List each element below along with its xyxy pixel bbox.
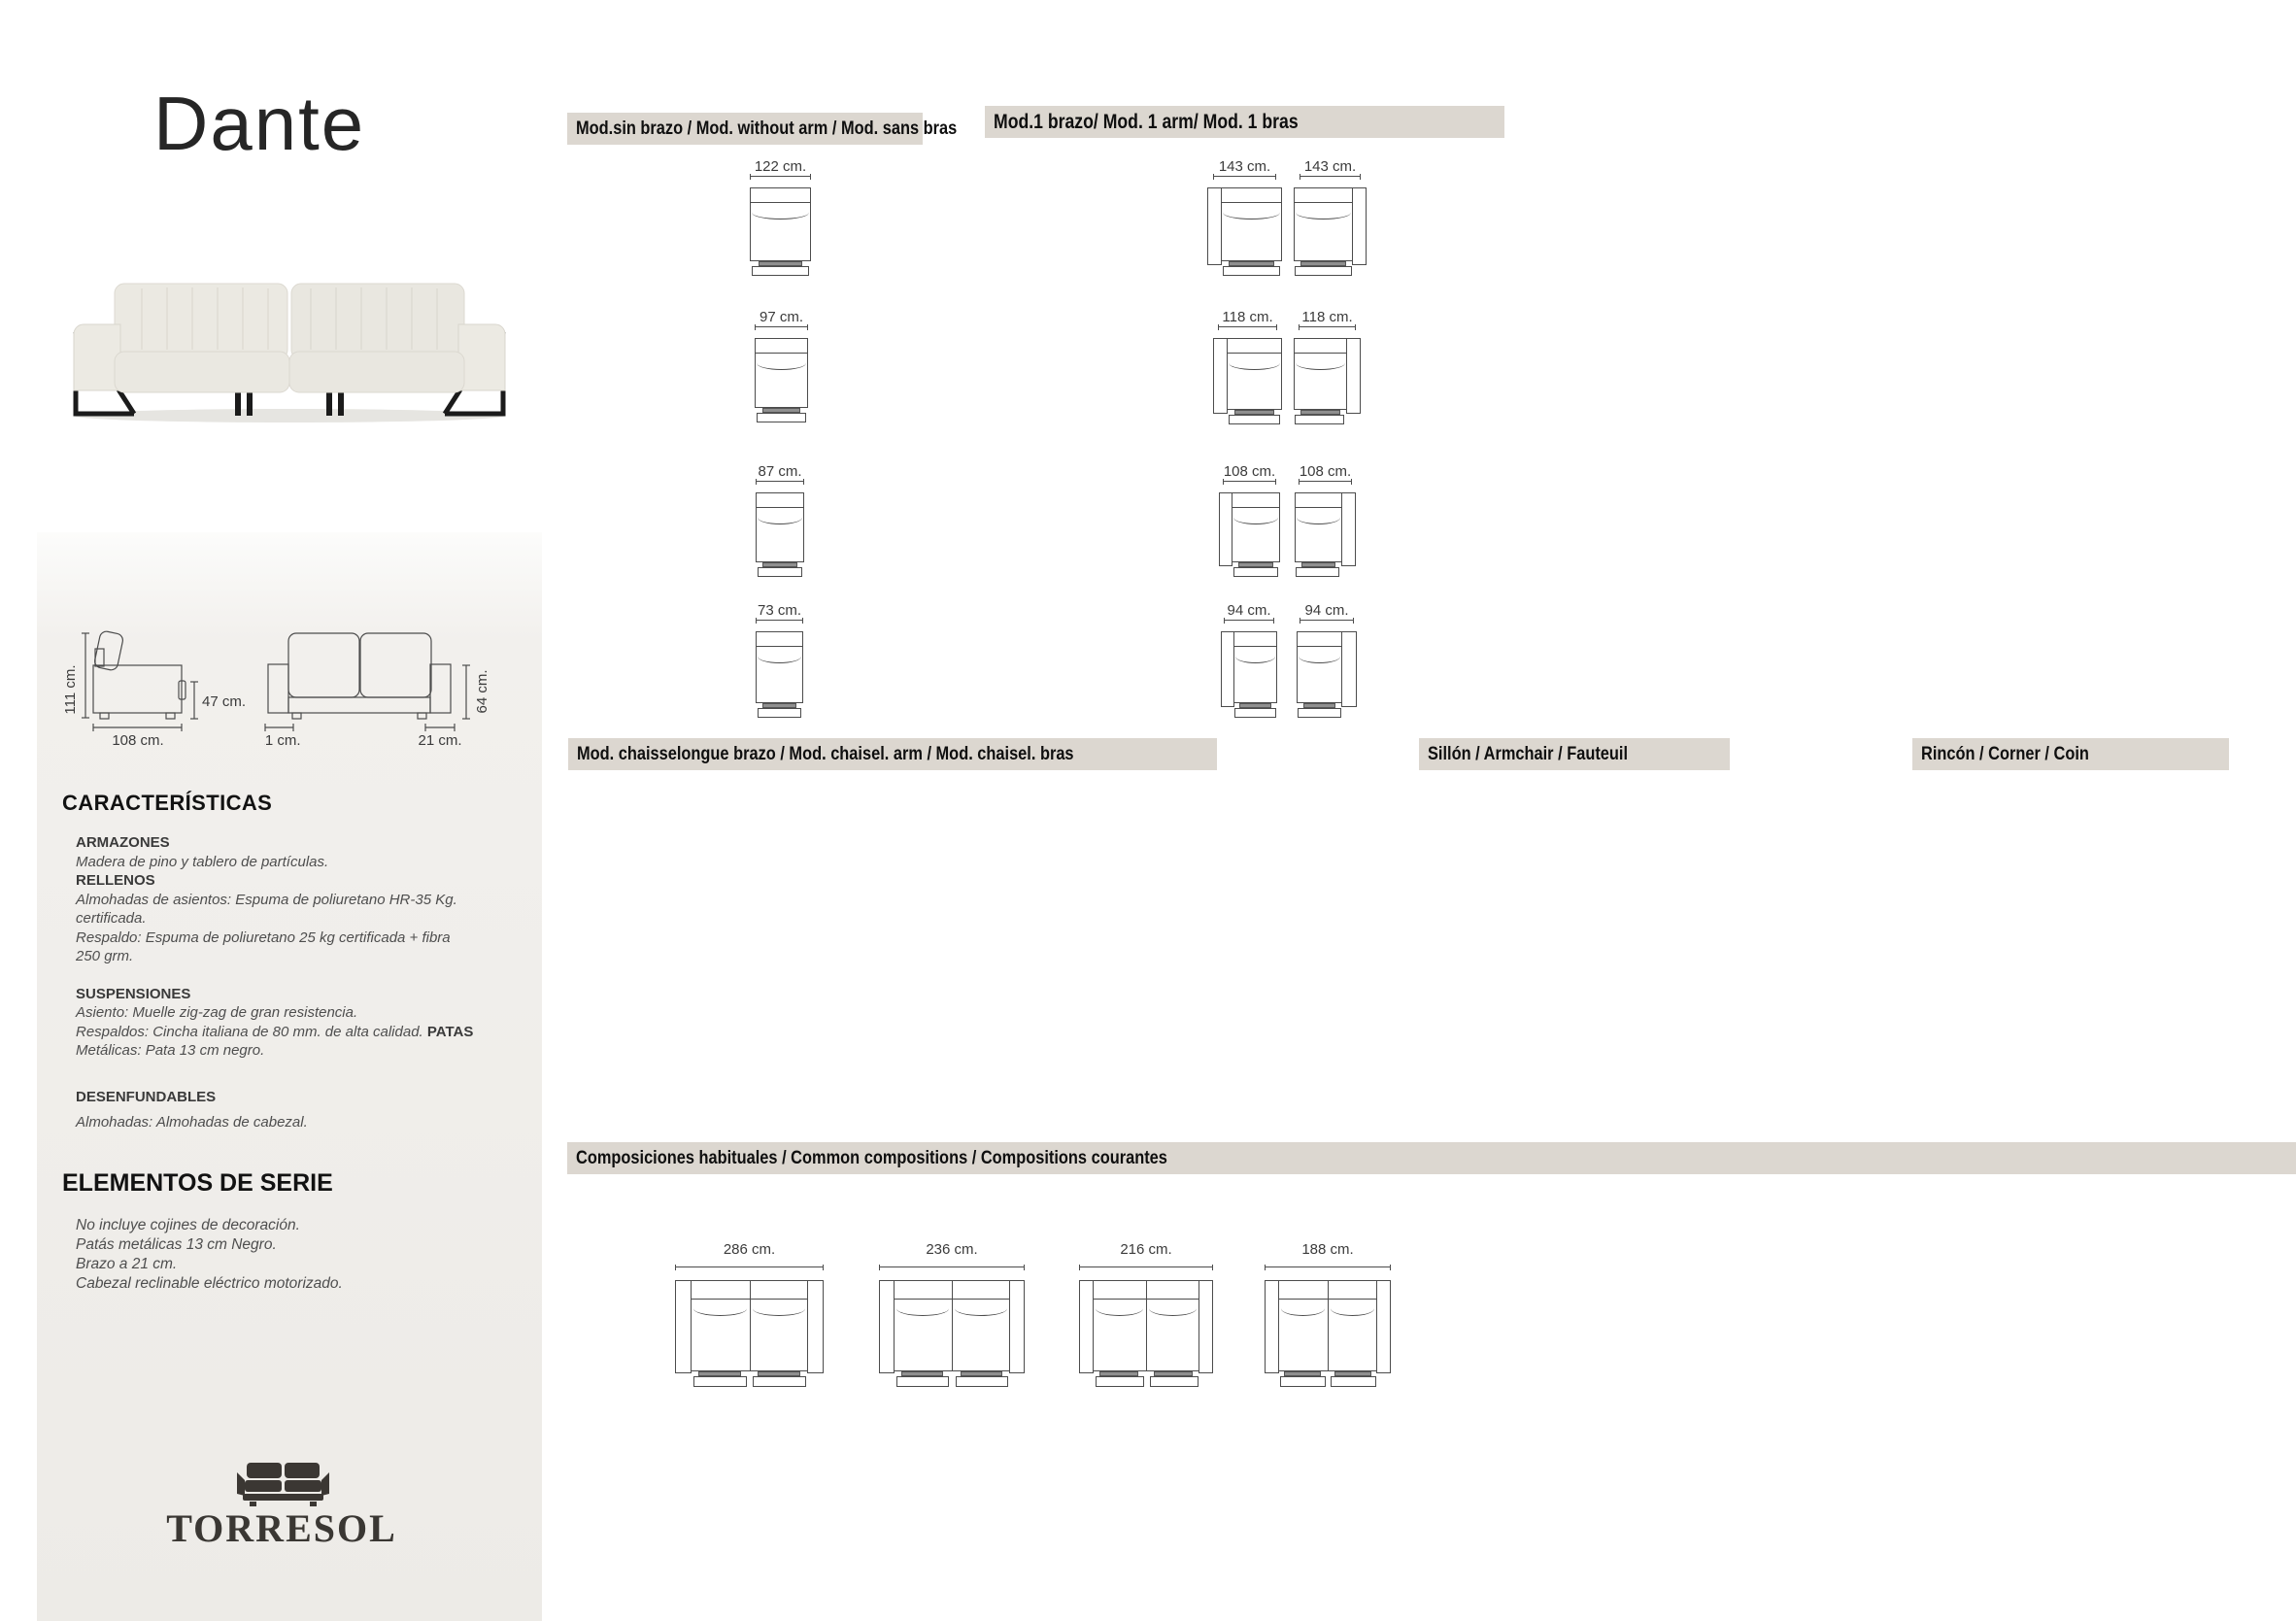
dimension-line bbox=[879, 1266, 1025, 1267]
module-body bbox=[755, 338, 808, 408]
side-height-label: 111 cm. bbox=[62, 664, 79, 714]
characteristics-text: ARMAZONES Madera de pino y tablero de pa… bbox=[76, 833, 532, 1132]
section-header-armchair: Sillón / Armchair / Fauteuil bbox=[1419, 738, 1730, 770]
module-width-label: 73 cm. bbox=[756, 602, 803, 621]
dimension-line bbox=[1079, 1266, 1213, 1267]
dimension-line bbox=[756, 481, 804, 482]
composition-base bbox=[956, 1376, 1008, 1387]
module-body bbox=[1233, 631, 1277, 703]
composition-arm-right bbox=[1376, 1280, 1391, 1373]
composition-base bbox=[1096, 1376, 1144, 1387]
composition-width-label: 286 cm. bbox=[675, 1241, 824, 1267]
side-depth-label: 108 cm. bbox=[112, 732, 163, 749]
module-width-label: 94 cm. bbox=[1224, 602, 1274, 621]
sofa-seat-left bbox=[115, 352, 289, 392]
dimension-line bbox=[675, 1266, 824, 1267]
sofa-back-left bbox=[115, 284, 287, 359]
composition-body bbox=[1278, 1280, 1377, 1371]
dimension-line bbox=[1265, 1266, 1391, 1267]
dimension-line bbox=[1213, 176, 1276, 177]
module-arm bbox=[1221, 631, 1234, 707]
page-title: Dante bbox=[153, 85, 365, 161]
composition-body bbox=[691, 1280, 808, 1371]
module-body bbox=[1294, 187, 1353, 261]
module-body bbox=[1297, 631, 1342, 703]
module-arm bbox=[1346, 338, 1361, 414]
torresol-wordmark: TORRESOL bbox=[136, 1505, 427, 1551]
block-text-line: certificada. bbox=[76, 909, 532, 929]
block-label-desenfundables: DESENFUNDABLES bbox=[76, 1088, 532, 1107]
section-header-chaise: Mod. chaisselongue brazo / Mod. chaisel.… bbox=[568, 738, 1217, 770]
block-text-line: Metálicas: Pata 13 cm negro. bbox=[76, 1041, 532, 1061]
module-body bbox=[750, 187, 811, 261]
torresol-logo-sofa-icon bbox=[237, 1461, 330, 1509]
block-label-armazones: ARMAZONES bbox=[76, 833, 532, 853]
module-width-label: 143 cm. bbox=[1300, 158, 1361, 177]
series-line: Cabezal reclinable eléctrico motorizado. bbox=[76, 1274, 523, 1294]
module-width-label: 118 cm. bbox=[1299, 309, 1356, 327]
section-header-corner: Rincón / Corner / Coin bbox=[1912, 738, 2229, 770]
block-label-rellenos: RELLENOS bbox=[76, 871, 532, 891]
module-arm bbox=[1341, 492, 1356, 566]
module-width-label: 94 cm. bbox=[1300, 602, 1354, 621]
sofa-arm-left bbox=[74, 324, 120, 390]
block-text-line: Respaldos: Cincha italiana de 80 mm. de … bbox=[76, 1023, 532, 1042]
dimension-line bbox=[1299, 481, 1352, 482]
series-text: No incluye cojines de decoración. Patás … bbox=[76, 1216, 523, 1294]
module-body bbox=[1294, 338, 1347, 410]
dimensions-diagram-front-view: 21 cm. 21 cm. 64 cm. bbox=[264, 622, 492, 750]
module-body bbox=[1221, 187, 1282, 261]
composition-base bbox=[1280, 1376, 1326, 1387]
dimension-line bbox=[756, 620, 803, 621]
section-header-no-arm: Mod.sin brazo / Mod. without arm / Mod. … bbox=[567, 113, 923, 145]
module-arm bbox=[1352, 187, 1367, 265]
inline-bold-patas: PATAS bbox=[427, 1024, 474, 1040]
module-base bbox=[1298, 708, 1341, 718]
module-base bbox=[1295, 266, 1352, 276]
module-width-label: 118 cm. bbox=[1218, 309, 1277, 327]
product-photo-sofa bbox=[60, 280, 519, 423]
module-width-label: 87 cm. bbox=[756, 463, 804, 482]
module-base bbox=[758, 567, 802, 577]
module-base bbox=[757, 413, 806, 422]
dimension-line bbox=[1224, 620, 1274, 621]
composition-base bbox=[753, 1376, 806, 1387]
series-heading: ELEMENTOS DE SERIE bbox=[62, 1169, 333, 1198]
composition-arm-right bbox=[1009, 1280, 1025, 1373]
composition-base bbox=[1331, 1376, 1376, 1387]
composition-width-label: 236 cm. bbox=[879, 1241, 1025, 1267]
module-arm bbox=[1207, 187, 1222, 265]
composition-base bbox=[693, 1376, 747, 1387]
module-width-label: 108 cm. bbox=[1299, 463, 1352, 482]
dimension-line bbox=[750, 176, 811, 177]
series-line: Patás metálicas 13 cm Negro. bbox=[76, 1235, 523, 1255]
block-text-line: Madera de pino y tablero de partículas. bbox=[76, 853, 532, 872]
composition-arm-left bbox=[675, 1280, 692, 1373]
module-base bbox=[1223, 266, 1280, 276]
module-width-label: 108 cm. bbox=[1223, 463, 1276, 482]
composition-body bbox=[1093, 1280, 1199, 1371]
module-arm bbox=[1213, 338, 1228, 414]
module-body bbox=[1295, 492, 1342, 562]
sofa-shadow bbox=[74, 409, 505, 422]
series-line: No incluye cojines de decoración. bbox=[76, 1216, 523, 1235]
composition-arm-left bbox=[879, 1280, 895, 1373]
composition-arm-left bbox=[1079, 1280, 1094, 1373]
dimension-line bbox=[1218, 326, 1277, 327]
arm-width-left-label: 21 cm. bbox=[264, 732, 301, 749]
section-header-one-arm: Mod.1 brazo/ Mod. 1 arm/ Mod. 1 bras bbox=[985, 106, 1504, 138]
composition-arm-left bbox=[1265, 1280, 1279, 1373]
module-width-label: 122 cm. bbox=[750, 158, 811, 177]
module-base bbox=[1296, 567, 1339, 577]
module-base bbox=[758, 708, 801, 718]
block-text-line: 250 grm. bbox=[76, 947, 532, 966]
module-base bbox=[1234, 708, 1276, 718]
module-body bbox=[756, 492, 804, 562]
module-width-label: 143 cm. bbox=[1213, 158, 1276, 177]
composition-base bbox=[896, 1376, 949, 1387]
composition-width-label: 188 cm. bbox=[1265, 1241, 1391, 1267]
composition-width-label: 216 cm. bbox=[1079, 1241, 1213, 1267]
composition-base bbox=[1150, 1376, 1199, 1387]
module-arm bbox=[1341, 631, 1357, 707]
module-arm bbox=[1219, 492, 1232, 566]
dimension-line bbox=[1223, 481, 1276, 482]
characteristics-heading: CARACTERÍSTICAS bbox=[62, 791, 272, 816]
module-base bbox=[1229, 415, 1280, 424]
seat-height-label: 47 cm. bbox=[202, 693, 246, 710]
block-text-line: Asiento: Muelle zig-zag de gran resisten… bbox=[76, 1003, 532, 1023]
section-header-compositions: Composiciones habituales / Common compos… bbox=[567, 1142, 2296, 1174]
composition-arm-right bbox=[1199, 1280, 1213, 1373]
module-body bbox=[1227, 338, 1282, 410]
dimension-line bbox=[1300, 176, 1361, 177]
series-line: Brazo a 21 cm. bbox=[76, 1255, 523, 1274]
module-base bbox=[1233, 567, 1278, 577]
dimension-line bbox=[755, 326, 808, 327]
block-label-suspensiones: SUSPENSIONES bbox=[76, 985, 532, 1004]
module-base bbox=[1295, 415, 1344, 424]
block-text-line: Respaldo: Espuma de poliuretano 25 kg ce… bbox=[76, 929, 532, 948]
module-body bbox=[756, 631, 803, 703]
module-base bbox=[752, 266, 809, 276]
block-text-line: Almohadas de asientos: Espuma de poliure… bbox=[76, 891, 532, 910]
back-height-label: 64 cm. bbox=[474, 669, 490, 713]
dimension-line bbox=[1300, 620, 1354, 621]
composition-arm-right bbox=[807, 1280, 824, 1373]
sofa-arm-right bbox=[458, 324, 505, 390]
sofa-back-right bbox=[291, 284, 464, 359]
module-width-label: 97 cm. bbox=[755, 309, 808, 327]
sofa-seat-right bbox=[289, 352, 464, 392]
dimension-line bbox=[1299, 326, 1356, 327]
module-body bbox=[1232, 492, 1280, 562]
composition-body bbox=[894, 1280, 1010, 1371]
dimensions-diagram-side-view: 111 cm. 47 cm. 108 cm. bbox=[56, 622, 251, 750]
arm-width-right-label: 21 cm. bbox=[418, 732, 461, 749]
block-text-line: Almohadas: Almohadas de cabezal. bbox=[76, 1113, 532, 1132]
